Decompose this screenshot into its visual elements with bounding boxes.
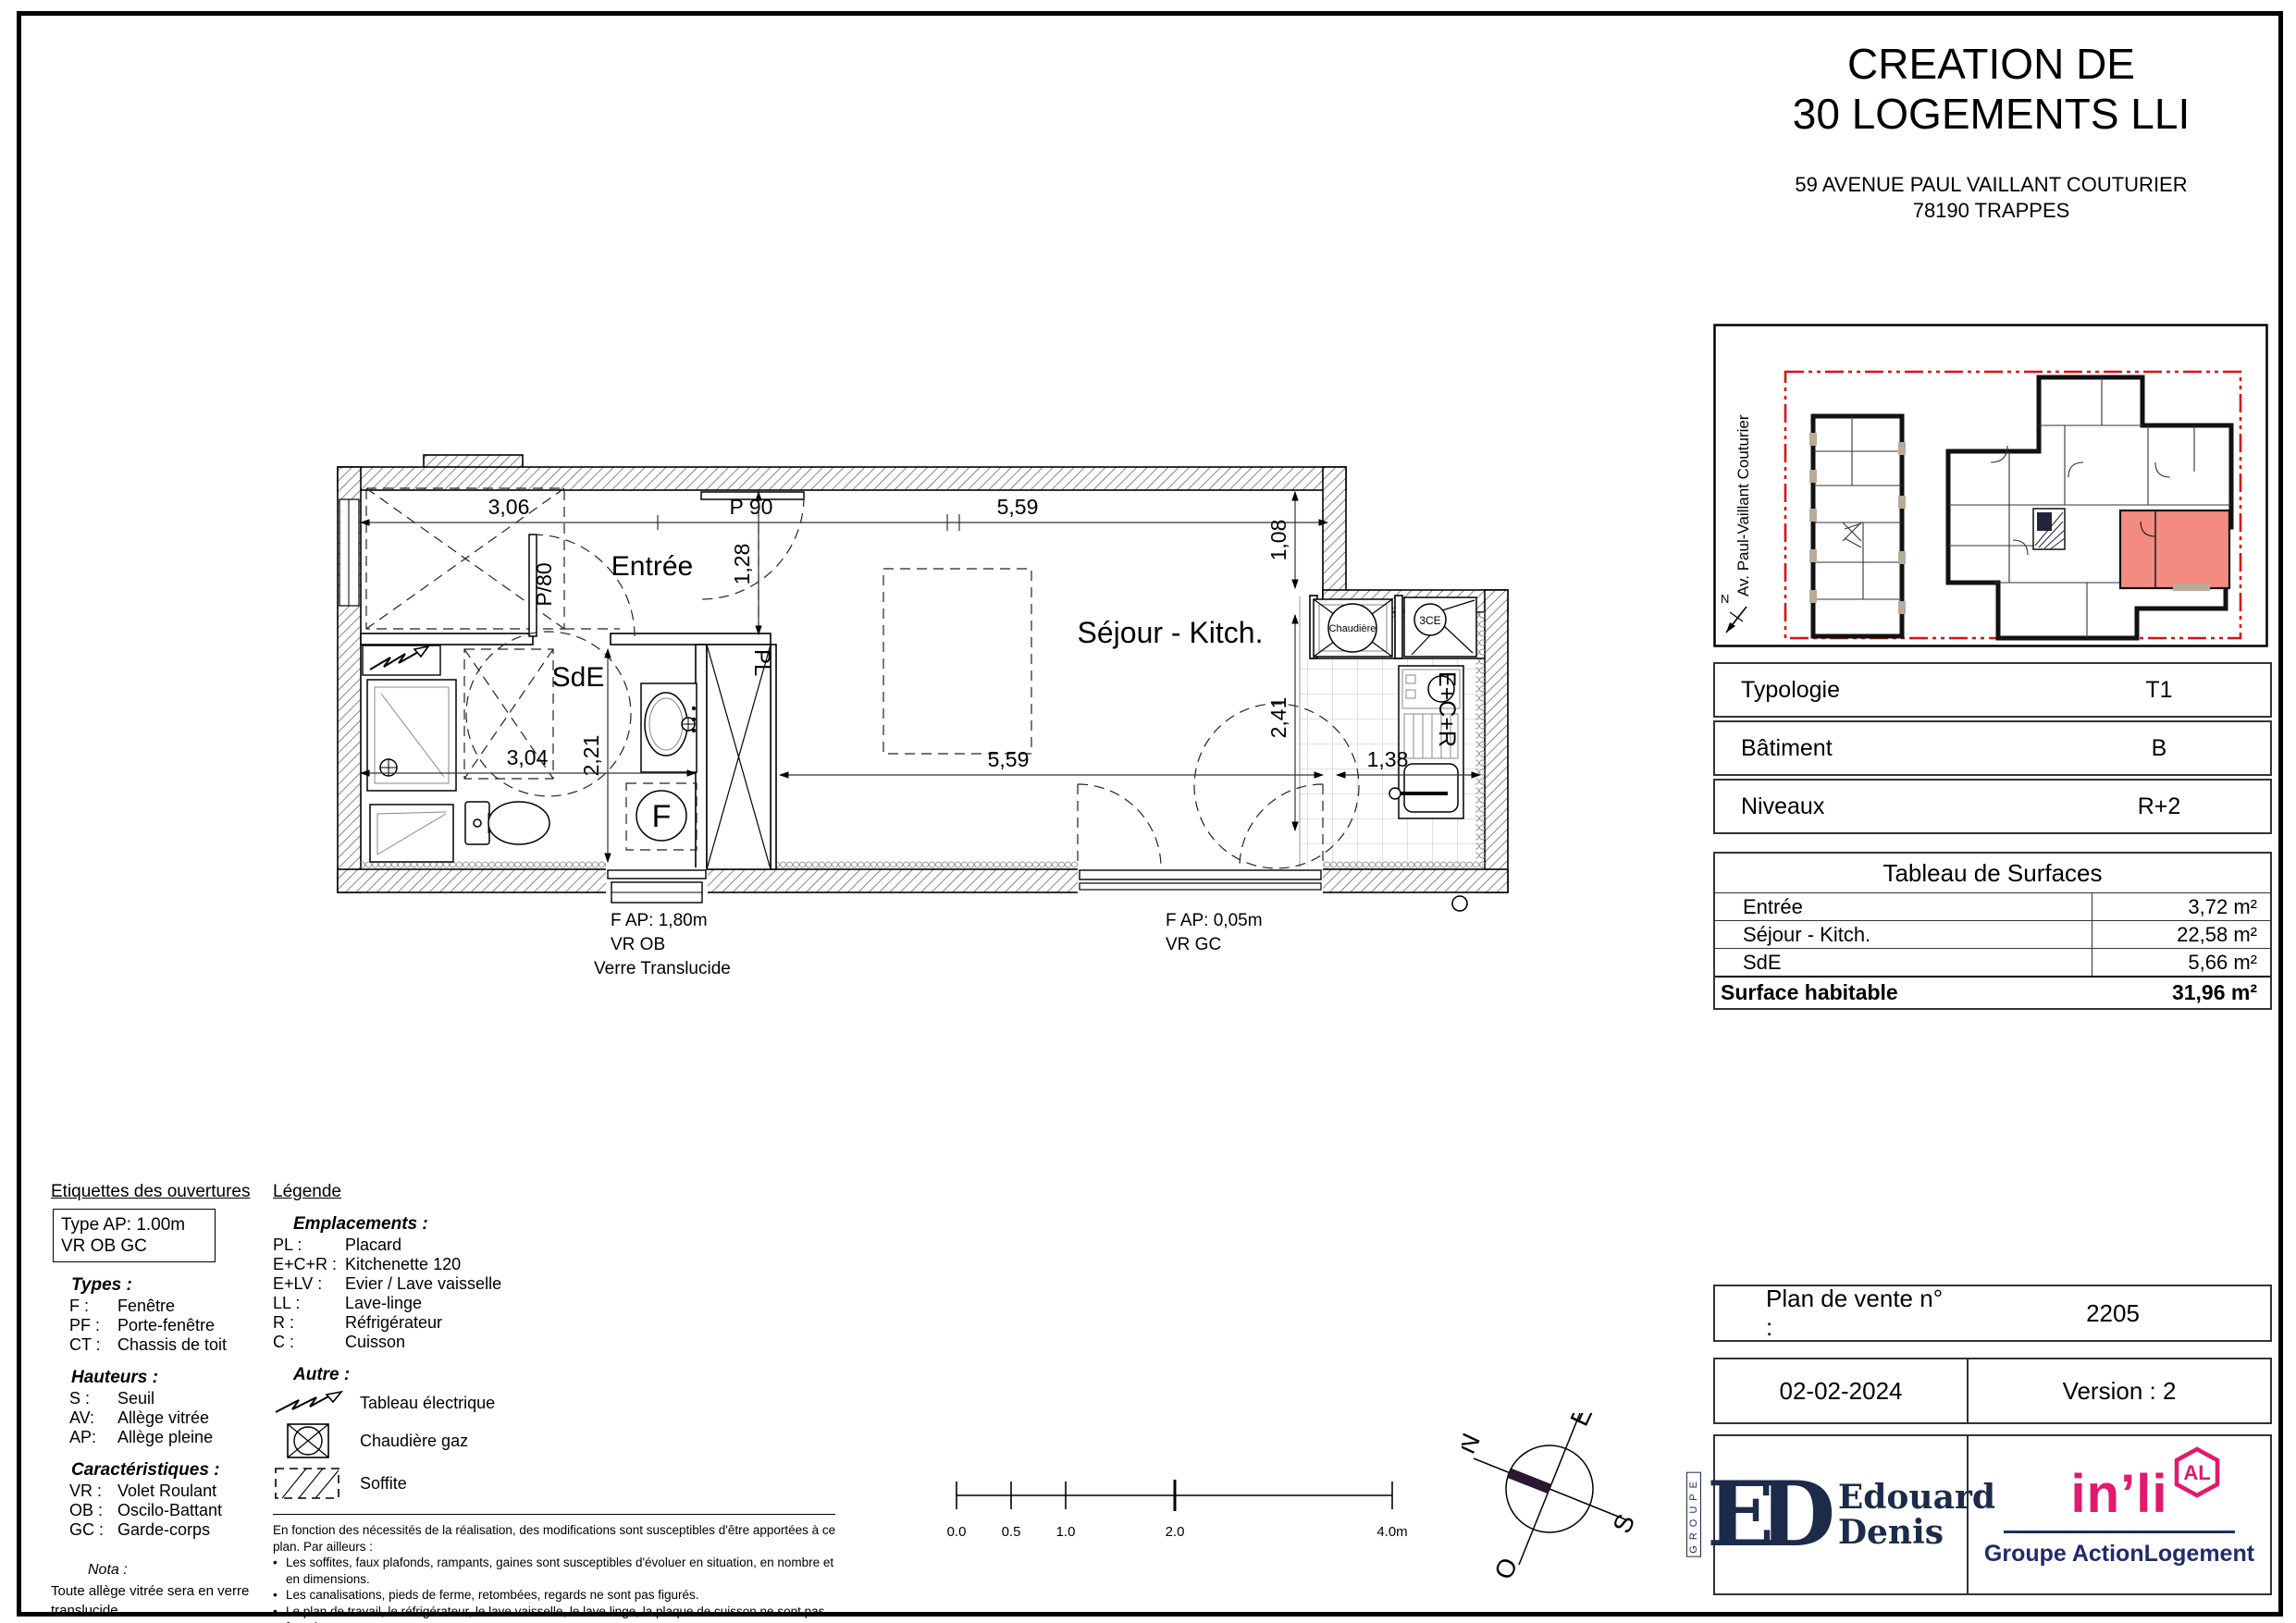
svg-text:VR GC: VR GC — [1166, 935, 1221, 954]
plan-vente-number: 2205 — [1956, 1299, 2270, 1328]
project-title-line2: 30 LOGEMENTS LLI — [1707, 89, 2276, 139]
ed-monogram-icon: ED — [1707, 1470, 1820, 1559]
plan-vente-label: Plan de vente n° : — [1715, 1285, 1956, 1342]
svg-text:P/80: P/80 — [532, 562, 556, 606]
legend-item-soffit: Soffite — [273, 1466, 846, 1501]
window-swing-left — [1078, 784, 1161, 867]
scale-bar: 0.0 0.5 1.0 2.0 4.0m — [944, 1475, 1425, 1558]
svg-text:1.0: 1.0 — [1056, 1524, 1076, 1540]
placard: PL — [707, 645, 774, 869]
table-row: Entrée 3,72 m² — [1715, 892, 2270, 920]
plan-version: Version : 2 — [1969, 1359, 2270, 1422]
room-label-sejour: Séjour - Kitch. — [1078, 616, 1264, 649]
info-row-typologie: Typologie T1 — [1713, 662, 2272, 718]
svg-text:4.0m: 4.0m — [1376, 1524, 1407, 1540]
site-building-a — [1809, 416, 1906, 636]
date-version-row: 02-02-2024 Version : 2 — [1713, 1358, 2272, 1424]
gas-boiler-icon — [273, 1421, 343, 1460]
info-row-batiment: Bâtiment B — [1713, 720, 2272, 776]
electrical-panel-icon — [273, 1390, 343, 1416]
compass-rose-icon: N E S O — [1462, 1413, 1656, 1589]
legend-divider — [273, 1514, 835, 1515]
sde-window — [606, 867, 708, 903]
room-label-entree: Entrée — [611, 551, 693, 582]
project-title-line1: CREATION DE — [1707, 39, 2276, 89]
window-tag-f: F — [626, 783, 697, 850]
svg-text:Verre Translucide: Verre Translucide — [594, 959, 731, 978]
batiment-label: Bâtiment — [1715, 735, 2048, 762]
svg-text:P 90: P 90 — [730, 495, 773, 519]
nota-heading: Nota : — [88, 1560, 282, 1580]
surface-table: Tableau de Surfaces Entrée 3,72 m² Séjou… — [1713, 852, 2272, 1010]
svg-text:5,59: 5,59 — [997, 495, 1039, 519]
flue-3ce: 3CE — [1404, 597, 1476, 657]
surface-total-value: 31,96 m² — [2172, 980, 2270, 1005]
openings-heading: Etiquettes des ouvertures — [51, 1182, 282, 1201]
street-label: Av. Paul-Vaillant Couturier — [1734, 414, 1752, 596]
surface-row-value: 5,66 m² — [2092, 949, 2270, 976]
plan-sheet: CREATION DE 30 LOGEMENTS LLI 59 AVENUE P… — [0, 0, 2296, 1623]
survey-mark — [1452, 896, 1467, 911]
action-logement-label: Groupe ActionLogement — [1984, 1541, 2254, 1568]
disclaimer: En fonction des nécessités de la réalisa… — [273, 1522, 839, 1623]
surface-row-value: 3,72 m² — [2092, 893, 2270, 920]
svg-text:1,28: 1,28 — [730, 544, 754, 585]
washbasin — [641, 683, 697, 772]
typologie-label: Typologie — [1715, 677, 2048, 704]
surface-row-label: Entrée — [1715, 895, 2092, 919]
svg-text:F AP: 0,05m: F AP: 0,05m — [1166, 911, 1263, 930]
logos-block: GROUPE ED Edouard Denis in’li AL Groupe … — [1713, 1434, 2272, 1595]
surface-total-label: Surface habitable — [1715, 980, 2172, 1005]
heights-heading: Hauteurs : — [71, 1368, 282, 1387]
al-hexagon-icon: AL — [2173, 1446, 2221, 1498]
electrical-panel-icon — [363, 646, 440, 675]
svg-text:E: E — [1564, 1413, 1598, 1431]
svg-text:F AP: 1,80m: F AP: 1,80m — [611, 911, 708, 930]
typologie-value: T1 — [2048, 677, 2270, 704]
inli-wordmark: in’li — [2071, 1464, 2168, 1524]
niveaux-label: Niveaux — [1715, 793, 2048, 820]
window-annotations: F AP: 1,80m VR OB Verre Translucide F AP… — [594, 911, 1263, 978]
inli-divider — [2004, 1531, 2235, 1533]
svg-text:0.0: 0.0 — [947, 1524, 967, 1540]
opening-tag-sample: Type AP: 1.00m VR OB GC — [53, 1209, 216, 1262]
info-row-niveaux: Niveaux R+2 — [1713, 779, 2272, 834]
sejour-window — [1078, 867, 1323, 894]
svg-text:F: F — [652, 799, 672, 834]
emplacements-heading: Emplacements : — [293, 1214, 846, 1234]
svg-text:5,59: 5,59 — [988, 747, 1030, 771]
svg-text:3,06: 3,06 — [488, 495, 530, 519]
autre-heading: Autre : — [293, 1365, 846, 1384]
inli-logo: in’li AL Groupe ActionLogement — [1969, 1436, 2270, 1593]
kitchenette-unit: E+C+R — [1399, 666, 1463, 818]
svg-text:2,41: 2,41 — [1266, 697, 1290, 739]
svg-text:1,38: 1,38 — [1367, 747, 1409, 771]
svg-text:N: N — [1721, 592, 1729, 606]
floor-plan: F PL Chau — [333, 444, 1545, 990]
placard-label: PL — [749, 649, 774, 676]
site-plan: Av. Paul-Vaillant Couturier — [1713, 324, 2268, 652]
svg-text:1,08: 1,08 — [1266, 520, 1290, 561]
surface-row-value: 22,58 m² — [2092, 921, 2270, 948]
room-label-sde: SdE — [552, 662, 605, 693]
svg-text:O: O — [1488, 1554, 1523, 1584]
svg-text:2,21: 2,21 — [579, 735, 603, 777]
svg-text:3,04: 3,04 — [507, 745, 549, 769]
niveaux-value: R+2 — [2048, 793, 2270, 820]
batiment-value: B — [2048, 735, 2270, 762]
surface-row-label: SdE — [1715, 951, 2092, 975]
bed-dashed — [883, 569, 1031, 754]
svg-text:0.5: 0.5 — [1002, 1524, 1021, 1540]
surface-total-row: Surface habitable 31,96 m² — [1715, 976, 2270, 1008]
table-row: SdE 5,66 m² — [1715, 948, 2270, 976]
highlighted-unit — [2120, 510, 2229, 588]
left-wall-window — [339, 499, 359, 606]
groupe-vertical-label: GROUPE — [1686, 1472, 1701, 1557]
legend-item-electrical: Tableau électrique — [273, 1390, 846, 1416]
kitchenette-label: E+C+R — [1434, 671, 1460, 747]
legend-item-boiler: Chaudière gaz — [273, 1421, 846, 1460]
types-heading: Types : — [71, 1275, 282, 1295]
chars-heading: Caractéristiques : — [71, 1460, 282, 1480]
svg-text:3CE: 3CE — [1419, 614, 1440, 627]
shower-tray — [367, 680, 456, 791]
svg-text:AL: AL — [2184, 1461, 2211, 1484]
svg-text:2.0: 2.0 — [1166, 1524, 1185, 1540]
svg-text:N: N — [1462, 1429, 1486, 1457]
openings-legend: Etiquettes des ouvertures Type AP: 1.00m… — [51, 1182, 282, 1620]
svg-text:Chaudière: Chaudière — [1329, 623, 1376, 634]
surface-table-title: Tableau de Surfaces — [1715, 854, 2270, 892]
soffit-icon — [273, 1466, 343, 1501]
bench-unit — [370, 805, 453, 862]
boiler-icon: Chaudière — [1314, 599, 1392, 657]
table-row: Séjour - Kitch. 22,58 m² — [1715, 920, 2270, 948]
project-address2: 78190 TRAPPES — [1707, 198, 2276, 224]
title-block: CREATION DE 30 LOGEMENTS LLI 59 AVENUE P… — [1707, 39, 2276, 224]
edouard-denis-logo: GROUPE ED Edouard Denis — [1715, 1436, 1969, 1593]
surface-row-label: Séjour - Kitch. — [1715, 923, 2092, 947]
project-address1: 59 AVENUE PAUL VAILLANT COUTURIER — [1707, 172, 2276, 198]
plan-date: 02-02-2024 — [1715, 1359, 1969, 1422]
nota-text: Toute allège vitrée sera en verre transl… — [51, 1581, 282, 1620]
toilet — [465, 802, 549, 844]
main-legend: Légende Emplacements : PL :Placard E+C+R… — [273, 1182, 846, 1623]
svg-text:S: S — [1607, 1509, 1640, 1537]
svg-text:VR OB: VR OB — [611, 935, 665, 954]
room-labels: Entrée SdE Séjour - Kitch. — [552, 551, 1264, 693]
plan-vente-row: Plan de vente n° : 2205 — [1713, 1285, 2272, 1342]
legend-heading: Légende — [273, 1182, 846, 1201]
